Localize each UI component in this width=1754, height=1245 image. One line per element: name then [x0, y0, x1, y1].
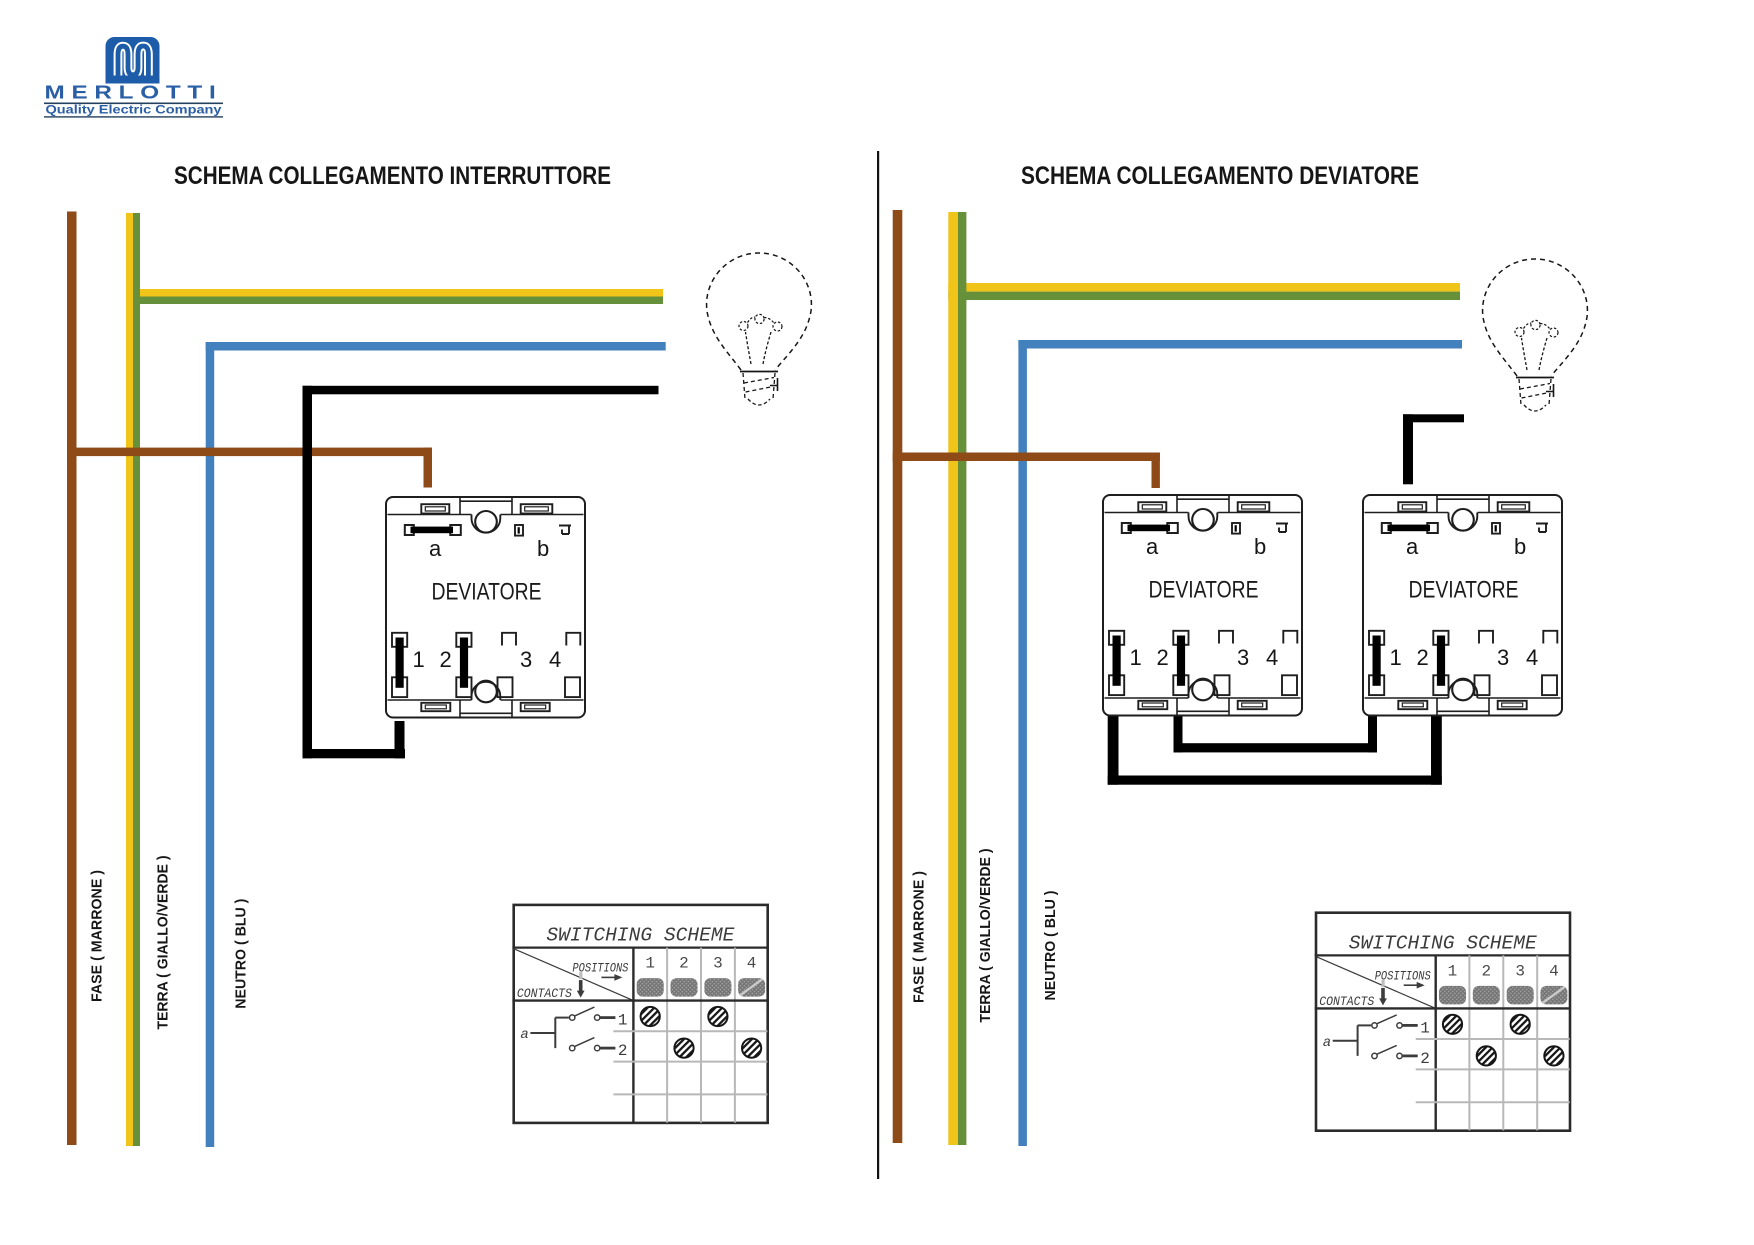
svg-text:NEUTRO ( BLU ): NEUTRO ( BLU ) [1042, 890, 1059, 1000]
svg-text:NEUTRO ( BLU ): NEUTRO ( BLU ) [233, 899, 250, 1009]
svg-text:FASE ( MARRONE ): FASE ( MARRONE ) [911, 871, 928, 1003]
svg-text:FASE ( MARRONE ): FASE ( MARRONE ) [89, 870, 106, 1002]
svg-text:SCHEMA COLLEGAMENTO DEVIATORE: SCHEMA COLLEGAMENTO DEVIATORE [1021, 162, 1419, 190]
svg-text:TERRA ( GIALLO/VERDE ): TERRA ( GIALLO/VERDE ) [155, 855, 172, 1029]
svg-text:MERLOTTI: MERLOTTI [45, 83, 223, 103]
svg-text:SCHEMA COLLEGAMENTO INTERRUTTO: SCHEMA COLLEGAMENTO INTERRUTTORE [174, 162, 611, 190]
svg-text:Quality Electric Company: Quality Electric Company [46, 105, 223, 117]
svg-text:TERRA ( GIALLO/VERDE ): TERRA ( GIALLO/VERDE ) [977, 848, 994, 1022]
